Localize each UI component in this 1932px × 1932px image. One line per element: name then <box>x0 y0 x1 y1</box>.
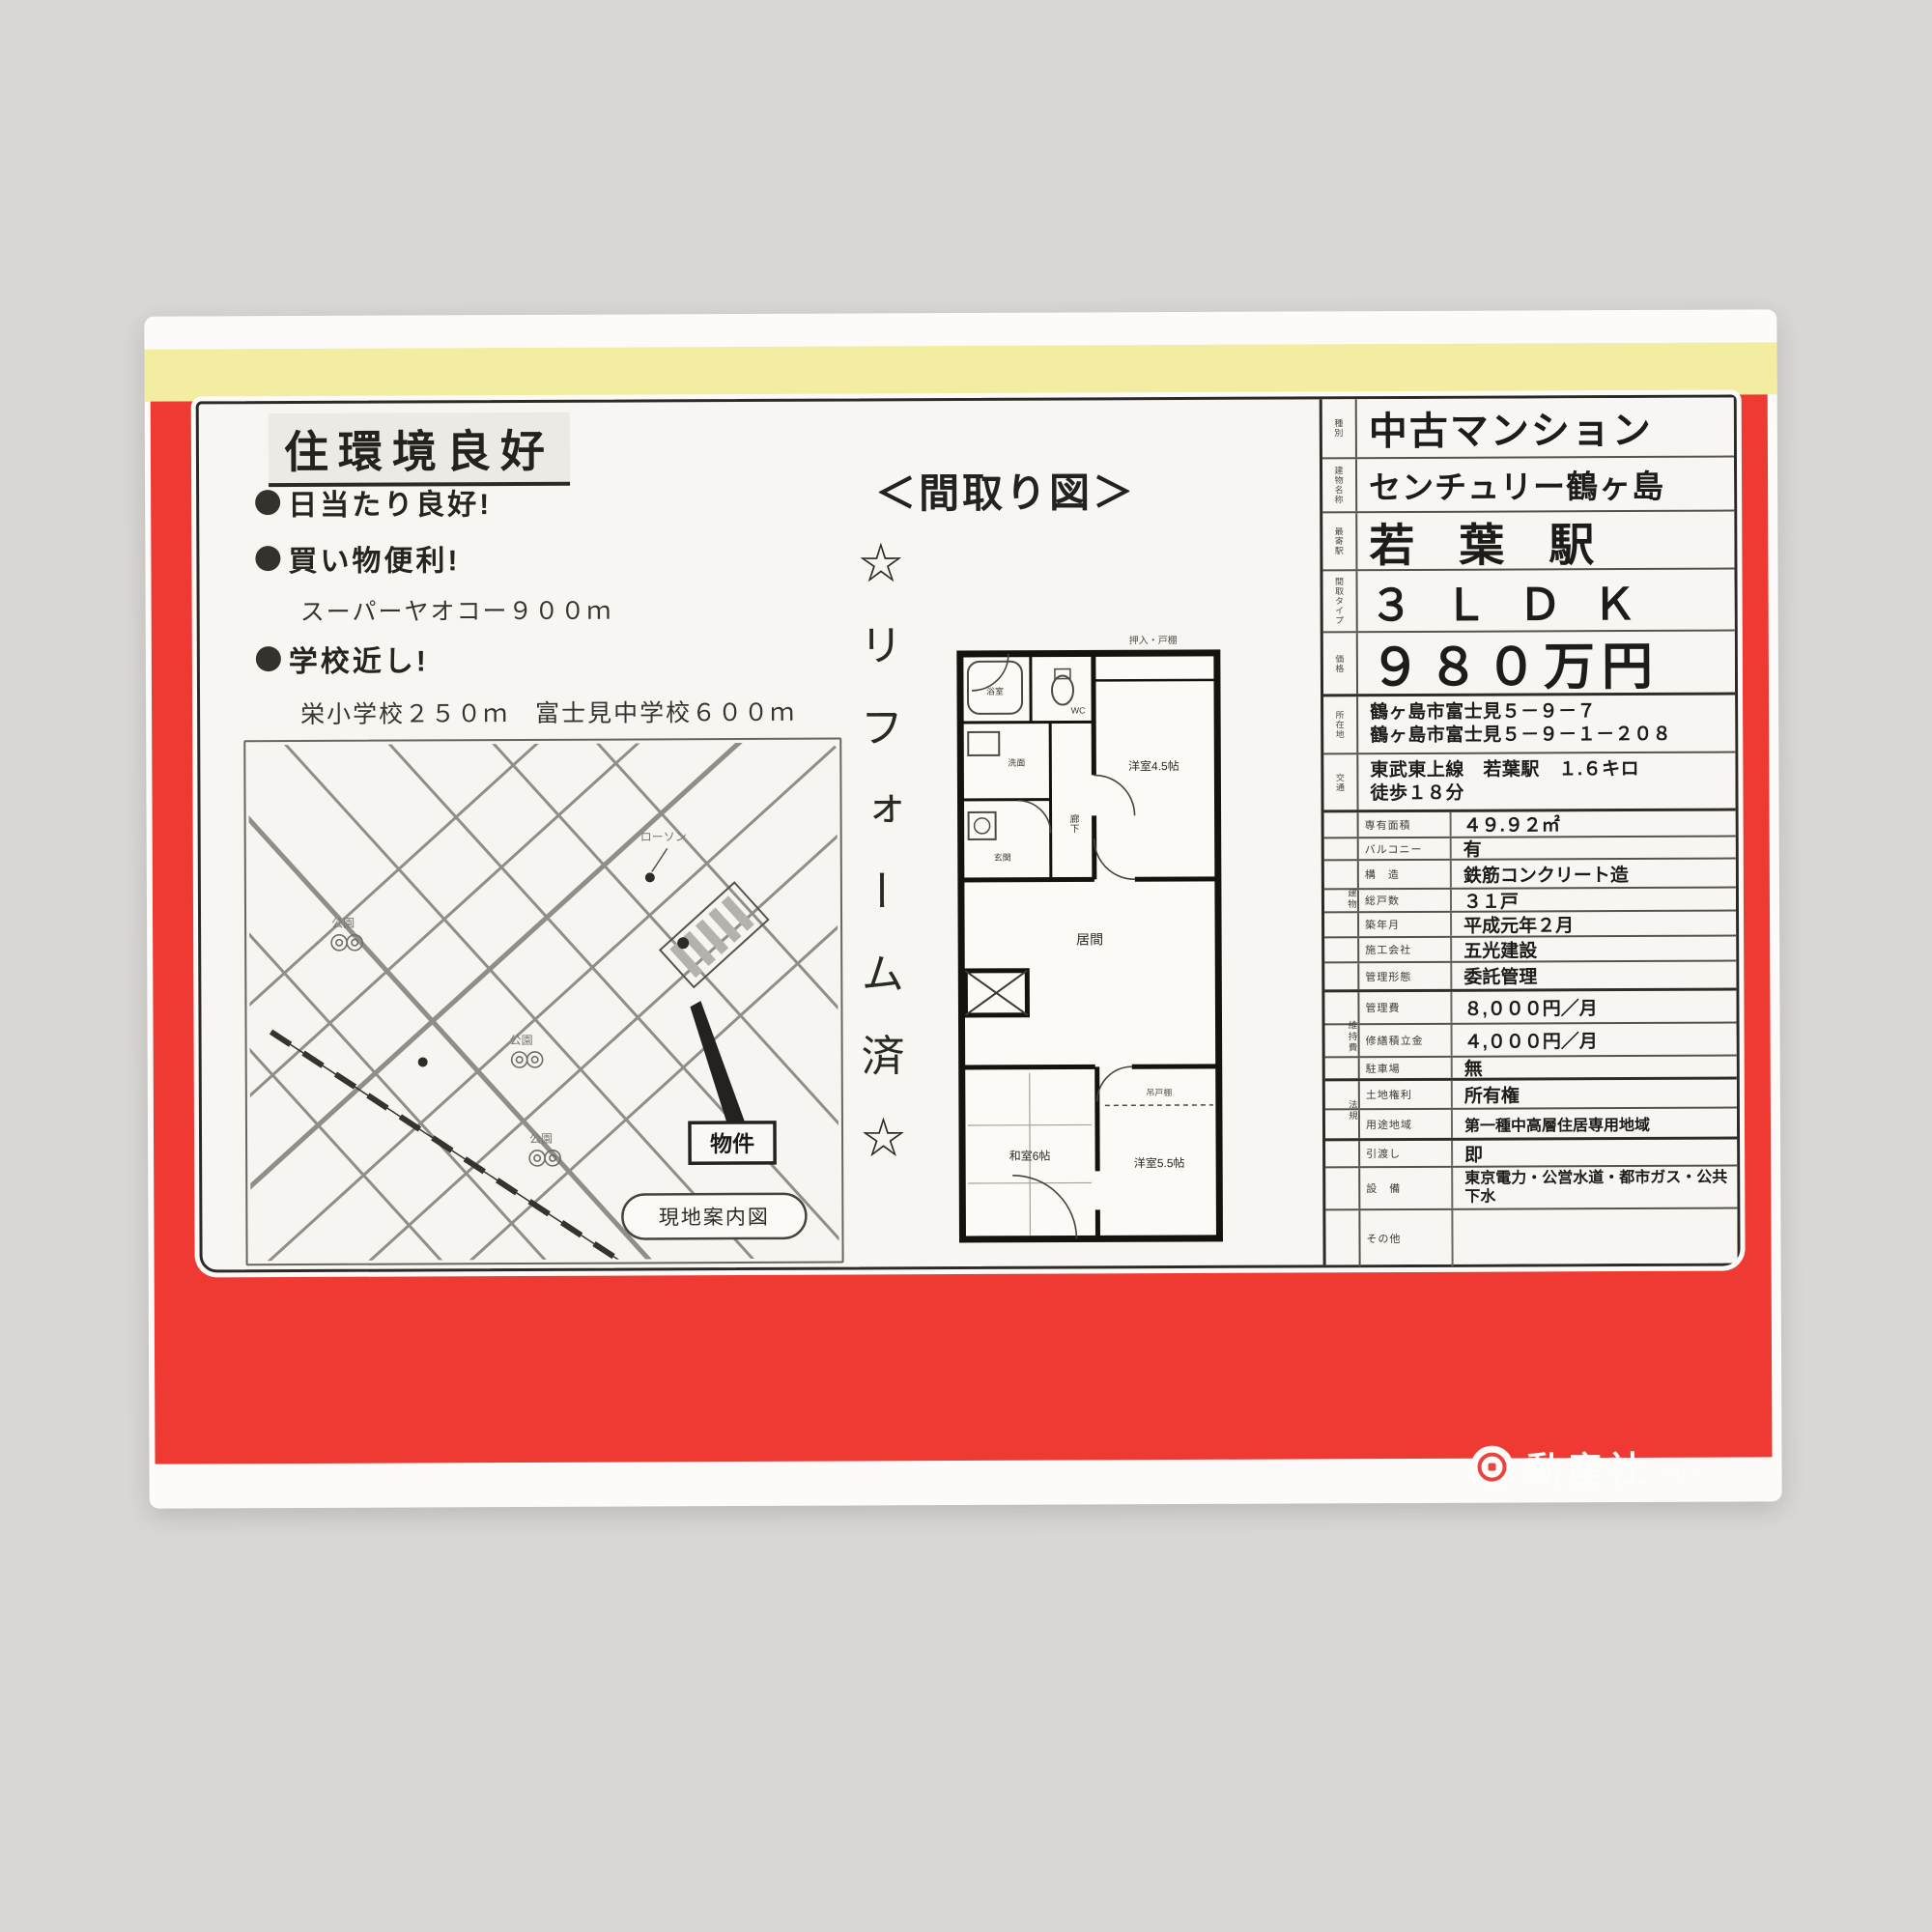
yellow-band <box>144 342 1776 401</box>
group-label-legal: 法規 <box>1325 1083 1358 1137</box>
flyer-sheet: 住環境良好 日当たり良好! 買い物便利! スーパーヤオコー９００ｍ 学校近し! … <box>144 309 1781 1508</box>
park-symbols <box>331 934 560 1167</box>
room-label-wash: 洗面 <box>1008 757 1025 768</box>
bullet-text: 学校近し! <box>289 637 429 680</box>
row-label: 駐車場 <box>1360 1058 1453 1078</box>
property-type: 中古マンション <box>1357 398 1734 458</box>
bullet-subtext: 栄小学校２５０ｍ 富士見中学校６００ｍ <box>300 694 796 730</box>
table-row: 用途地域 第一種中高層住居専用地域 <box>1325 1109 1737 1142</box>
table-row: 管理形態 委託管理 <box>1324 962 1736 993</box>
handover: 即 <box>1453 1140 1737 1166</box>
red-frame: 住環境良好 日当たり良好! 買い物便利! スーパーヤオコー９００ｍ 学校近し! … <box>151 394 1773 1463</box>
room-label-living: 居間 <box>1076 931 1103 947</box>
flyer-content-panel: 住環境良好 日当たり良好! 買い物便利! スーパーヤオコー９００ｍ 学校近し! … <box>196 395 1741 1273</box>
floorplan-top-note: 押入・戸棚 <box>1129 634 1178 646</box>
address-line1: 鶴ヶ島市富士見５－９－７ <box>1370 700 1596 724</box>
building-name: センチュリー鶴ヶ島 <box>1357 458 1734 512</box>
balcony: 有 <box>1452 838 1736 859</box>
company-name: 動産社 <box>1526 1440 1648 1493</box>
bullet-item: 学校近し! <box>256 637 429 680</box>
row-label: 総戸数 <box>1359 890 1452 911</box>
bullet-subtext: スーパーヤオコー９００ｍ <box>300 592 613 628</box>
station-symbol <box>660 883 768 987</box>
other-notes <box>1453 1209 1737 1266</box>
table-row: 管理費 ８,０００円／月 <box>1324 991 1736 1026</box>
price: ９８０万円 <box>1358 632 1735 695</box>
park-label: 公園 <box>529 1132 553 1146</box>
company-logo-icon <box>1470 1446 1513 1489</box>
map-caption: 現地案内図 <box>659 1207 770 1230</box>
table-row: 築年月 平成元年２月 <box>1324 912 1736 939</box>
table-row: 引渡し 即 <box>1325 1140 1737 1169</box>
row-label: 価格 <box>1323 633 1358 694</box>
store-label: ローソン <box>640 830 687 843</box>
row-label: 施工会社 <box>1359 938 1452 961</box>
headline: 住環境良好 <box>269 412 570 487</box>
row-label: 管理形態 <box>1359 963 1452 989</box>
bullet-item: 買い物便利! <box>255 536 460 580</box>
row-label: その他 <box>1360 1210 1453 1266</box>
room-label-bed1: 洋室4.5帖 <box>1128 758 1179 773</box>
access-line2: 徒歩１８分 <box>1370 781 1464 805</box>
table-row: 建物名称 センチュリー鶴ヶ島 <box>1322 458 1734 514</box>
row-label: 土地権利 <box>1360 1081 1453 1108</box>
table-row: 構 造 鉄筋コンクリート造 <box>1324 860 1736 891</box>
row-label: 交通 <box>1323 754 1358 810</box>
room-label-hall: 廊下 <box>1067 812 1079 834</box>
room-label-bed2: 洋室5.5帖 <box>1134 1155 1185 1170</box>
reform-vertical-text: ☆リフォーム済☆ <box>840 482 911 1255</box>
park-label: 公園 <box>510 1034 533 1047</box>
property-spec-table: 種別 中古マンション 建物名称 センチュリー鶴ヶ島 最寄駅 若葉駅 間取タイプ … <box>1320 398 1738 1265</box>
table-row: 価格 ９８０万円 <box>1323 632 1735 697</box>
bullet-item: 日当たり良好! <box>255 480 492 524</box>
row-label: 管理費 <box>1359 992 1452 1023</box>
station-name: 若葉駅 <box>1357 512 1734 570</box>
row-label: 築年月 <box>1359 913 1452 936</box>
bullet-text: 日当たり良好! <box>288 480 492 524</box>
access-line1: 東武東上線 若葉駅 １.６キロ <box>1370 758 1639 782</box>
table-row: 修繕積立金 ４,０００円／月 <box>1325 1024 1737 1059</box>
room-label-tatami: 和室6帖 <box>1009 1149 1051 1163</box>
location-map: 公園 公園 公園 ローソン 物件 現地案内図 <box>243 738 843 1266</box>
group-label-fees: 維持費 <box>1324 1000 1357 1073</box>
room-label-entry: 玄関 <box>994 852 1011 863</box>
table-row: 最寄駅 若葉駅 <box>1322 512 1734 572</box>
room-label-wc: WC <box>1071 705 1087 715</box>
table-row: その他 <box>1325 1209 1737 1267</box>
bullet-icon <box>255 546 280 571</box>
row-label: 最寄駅 <box>1322 513 1357 569</box>
row-label: 構 造 <box>1359 861 1452 888</box>
row-label: 設 備 <box>1360 1168 1453 1208</box>
row-label: 専有面積 <box>1359 812 1452 837</box>
floorplan-title: ＜間取り図＞ <box>875 460 1136 520</box>
floor-area: ４９.９２㎡ <box>1452 811 1736 837</box>
layout-type: ３ＬＤＫ <box>1357 570 1734 632</box>
floorplan: 押入・戸棚 <box>949 630 1234 1255</box>
land-rights: 所有権 <box>1453 1080 1737 1108</box>
row-label: 修繕積立金 <box>1360 1025 1453 1056</box>
bullet-icon <box>256 646 281 671</box>
property-label: 物件 <box>710 1131 754 1156</box>
room-label-shelf: 吊戸棚 <box>1146 1087 1172 1097</box>
group-label-building: 建物 <box>1324 845 1357 952</box>
address-line2: 鶴ヶ島市富士見５－９－１－２０８ <box>1370 724 1671 748</box>
park-label: 公園 <box>331 917 355 930</box>
table-row: 施工会社 五光建設 <box>1324 937 1736 964</box>
row-label: 引渡し <box>1360 1141 1453 1166</box>
table-row: 交通 東武東上線 若葉駅 １.６キロ 徒歩１８分 <box>1323 753 1735 813</box>
builder: 五光建設 <box>1452 937 1736 961</box>
utilities: 東京電力・公営水道・都市ガス・公共下水 <box>1453 1167 1737 1208</box>
table-row: 種別 中古マンション <box>1322 398 1734 460</box>
table-row: 駐車場 無 <box>1325 1057 1737 1082</box>
table-row: 総戸数 ３１戸 <box>1324 889 1736 914</box>
bullet-text: 買い物便利! <box>288 536 460 580</box>
bullet-icon <box>255 490 280 515</box>
photo-background: 住環境良好 日当たり良好! 買い物便利! スーパーヤオコー９００ｍ 学校近し! … <box>0 0 1932 1932</box>
table-row: 設 備 東京電力・公営水道・都市ガス・公共下水 <box>1325 1167 1737 1211</box>
room-label-bath: 浴室 <box>986 686 1004 696</box>
row-label: 所在地 <box>1323 696 1358 753</box>
total-units: ３１戸 <box>1452 889 1736 911</box>
company-logo: 動産社 NO.3 <box>1470 1440 1700 1493</box>
floorplan-drawing: 押入・戸棚 <box>949 630 1234 1255</box>
structure: 鉄筋コンクリート造 <box>1452 860 1736 888</box>
row-label: 種別 <box>1322 399 1357 457</box>
table-row: 所在地 鶴ヶ島市富士見５－９－７ 鶴ヶ島市富士見５－９－１－２０８ <box>1323 696 1735 755</box>
row-label: 用途地域 <box>1360 1110 1453 1138</box>
row-label: バルコニー <box>1359 838 1452 859</box>
table-row: バルコニー 有 <box>1324 838 1736 862</box>
zoning: 第一種中高層住居専用地域 <box>1453 1109 1737 1138</box>
parking: 無 <box>1453 1057 1737 1078</box>
company-note: NO.3 <box>1666 1466 1701 1480</box>
management-fee: ８,０００円／月 <box>1452 991 1736 1023</box>
row-label: 間取タイプ <box>1322 571 1357 631</box>
built-date: 平成元年２月 <box>1452 912 1736 936</box>
management: 委託管理 <box>1452 962 1736 989</box>
map-drawing: 公園 公園 公園 ローソン 物件 現地案内図 <box>245 740 841 1264</box>
repair-fund: ４,０００円／月 <box>1453 1024 1737 1056</box>
row-label: 建物名称 <box>1322 459 1357 511</box>
table-row: 専有面積 ４９.９２㎡ <box>1324 811 1736 839</box>
table-row: 間取タイプ ３ＬＤＫ <box>1322 570 1734 634</box>
table-row: 土地権利 所有権 <box>1325 1080 1737 1111</box>
